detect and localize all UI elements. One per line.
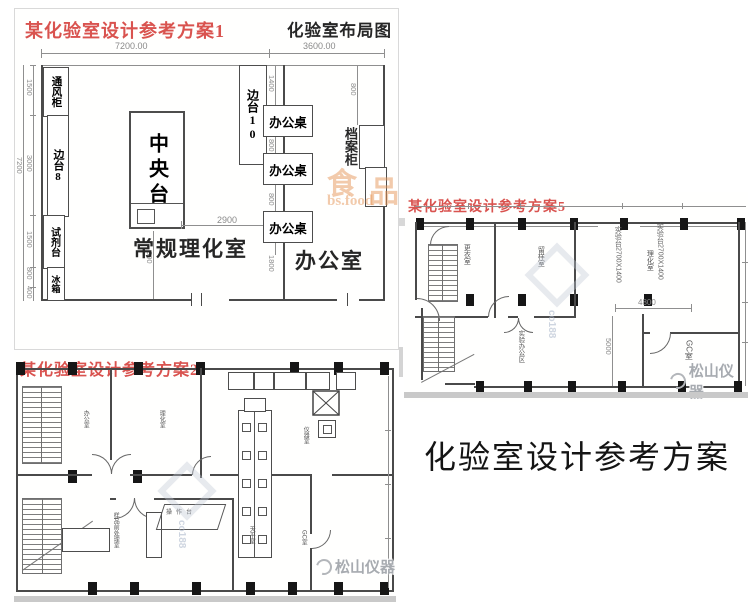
wall-bench bbox=[336, 372, 356, 390]
co188-watermark-text: co188 bbox=[176, 520, 187, 548]
bench-annotation: 实验台2700X1400 bbox=[614, 226, 621, 283]
image-shadow bbox=[14, 596, 396, 602]
bench-seat bbox=[258, 479, 267, 488]
image-remnant bbox=[398, 218, 405, 226]
stairs-rail bbox=[41, 387, 42, 463]
door-tick bbox=[191, 293, 192, 306]
column bbox=[134, 362, 143, 375]
dim-tick bbox=[385, 430, 391, 431]
dim-tick bbox=[385, 538, 391, 539]
dim-tick bbox=[181, 221, 182, 229]
dim-tick bbox=[269, 49, 270, 58]
room-label: GC室 bbox=[300, 530, 306, 545]
wall-line bbox=[642, 332, 650, 334]
dim-tick bbox=[742, 262, 748, 263]
wall-line bbox=[332, 474, 392, 476]
songshan-logo-icon bbox=[313, 556, 335, 578]
room-label-gc: GC室 bbox=[684, 340, 692, 360]
bench-seat bbox=[242, 423, 251, 432]
stairs bbox=[423, 316, 455, 372]
dim-label: 1800 bbox=[267, 255, 276, 272]
wall-line bbox=[310, 474, 312, 534]
small-fixture bbox=[318, 420, 336, 438]
bench-cap bbox=[244, 398, 266, 412]
column bbox=[130, 582, 139, 595]
wall-line bbox=[16, 474, 92, 476]
wall-bench bbox=[306, 372, 330, 390]
room-label: 更衣室 bbox=[463, 244, 470, 265]
dim-label: 800 bbox=[267, 193, 276, 206]
room-label: 办公室 bbox=[82, 410, 88, 428]
bench-divider bbox=[131, 203, 183, 204]
office-desk-label: 办公桌 bbox=[269, 112, 307, 131]
door-arc bbox=[430, 226, 449, 245]
plan5-figure: 某化验室设计参考方案5 bbox=[404, 192, 748, 402]
dim-tick bbox=[468, 203, 469, 209]
bench-annotation: 实验台2700X1400 bbox=[656, 223, 663, 280]
column bbox=[416, 218, 424, 230]
room-label: 天平室 bbox=[248, 526, 254, 544]
bench-seat bbox=[242, 507, 251, 516]
dim-tick bbox=[520, 203, 521, 209]
co188-watermark-text: co188 bbox=[546, 310, 557, 338]
door-tick bbox=[347, 293, 348, 306]
door-arc bbox=[312, 530, 331, 549]
wall-line bbox=[229, 299, 337, 301]
door-tick bbox=[201, 293, 202, 306]
image-remnant bbox=[399, 347, 403, 377]
column bbox=[680, 218, 688, 230]
dim-label: 1500 bbox=[25, 231, 34, 248]
room-label: 理化室 bbox=[646, 250, 653, 271]
co188-diamond-watermark bbox=[524, 242, 589, 307]
dim-tick bbox=[682, 203, 683, 209]
door-arc bbox=[650, 333, 671, 354]
office-desk-label: 办公桌 bbox=[269, 160, 307, 179]
office-desk: 办公桌 bbox=[263, 211, 313, 243]
image-shadow bbox=[404, 392, 748, 398]
dim-label-height: 5000 bbox=[604, 338, 613, 355]
bench-seat bbox=[242, 451, 251, 460]
column bbox=[192, 582, 201, 595]
office-desk: 办公桌 bbox=[263, 153, 313, 185]
column bbox=[518, 218, 526, 230]
column bbox=[68, 362, 77, 375]
dim-tick bbox=[742, 342, 748, 343]
bench-seat bbox=[242, 479, 251, 488]
dim-line bbox=[415, 206, 746, 207]
office-desk-label: 办公桌 bbox=[269, 218, 307, 237]
side-bench-8: 边台8 bbox=[47, 115, 69, 217]
dim-label: 3000 bbox=[25, 155, 34, 172]
stairs bbox=[428, 244, 458, 302]
page-title: 化验室设计参考方案 bbox=[424, 432, 730, 478]
column bbox=[334, 582, 343, 595]
reagent-bench-label: 试剂台 bbox=[47, 227, 62, 257]
elevator-shaft-symbol bbox=[312, 390, 340, 416]
dim-label-cabinet: 800 bbox=[349, 83, 358, 96]
wall-line bbox=[415, 222, 746, 224]
fridge: 冰箱 bbox=[47, 267, 65, 301]
dim-tick bbox=[615, 304, 616, 312]
dim-tick bbox=[30, 115, 36, 116]
bench-seat bbox=[258, 507, 267, 516]
dim-line bbox=[615, 308, 692, 309]
dim-tick bbox=[691, 304, 692, 312]
bench bbox=[62, 528, 110, 552]
stairs-rail bbox=[438, 317, 439, 371]
column bbox=[133, 470, 142, 483]
watermark-food-url: bs.food bbox=[327, 193, 373, 210]
wall-line bbox=[110, 368, 112, 460]
plan1-subtitle: 化验室布局图 bbox=[287, 17, 392, 41]
wall-bench bbox=[274, 372, 306, 390]
stairs-rail bbox=[442, 245, 443, 301]
songshan-watermark: 松山仪器 bbox=[316, 556, 395, 577]
reagent-bench: 试剂台 bbox=[43, 215, 65, 269]
side-bench-10-label: 边台10 bbox=[245, 89, 262, 141]
room-label: 仪器室 bbox=[302, 426, 308, 444]
wall-line bbox=[445, 383, 475, 385]
wall-line bbox=[670, 332, 740, 334]
door-arc bbox=[92, 454, 112, 474]
sink-symbol bbox=[137, 209, 155, 224]
dim-line bbox=[41, 53, 385, 54]
dim-tick bbox=[742, 302, 748, 303]
wall-line bbox=[359, 299, 385, 301]
column bbox=[466, 218, 474, 230]
bench-seat bbox=[258, 451, 267, 460]
side-bench-8-label: 边台8 bbox=[50, 149, 66, 183]
dim-tick bbox=[622, 203, 623, 209]
dim-tick bbox=[385, 484, 391, 485]
wall-bench bbox=[228, 372, 254, 390]
room-label: 样品前处理室 bbox=[112, 512, 118, 548]
column bbox=[380, 362, 389, 375]
instrument-bench bbox=[238, 410, 272, 558]
room-label-lab: 常规理化室 bbox=[133, 233, 248, 263]
collage-canvas: 某化验室设计参考方案1 化验室布局图 7200.00 3600.00 7200 … bbox=[0, 0, 750, 616]
stairs-rail bbox=[42, 499, 43, 573]
stairs bbox=[22, 386, 62, 464]
room-label: 实验办公区 bbox=[516, 330, 523, 363]
dim-label-overall: 7200 bbox=[15, 157, 24, 174]
songshan-watermark-text: 松山仪器 bbox=[335, 556, 395, 577]
door-arc bbox=[111, 454, 131, 474]
dim-label: 800 bbox=[25, 267, 34, 280]
dim-label: 400 bbox=[25, 286, 34, 299]
door-arc bbox=[488, 296, 509, 317]
column bbox=[88, 582, 97, 595]
dim-label: 1400 bbox=[267, 75, 276, 92]
bench-seat bbox=[258, 423, 267, 432]
bench-seat bbox=[258, 535, 267, 544]
wall-bench bbox=[254, 372, 274, 390]
dim-label-central-width: 2900 bbox=[217, 215, 237, 225]
fixture-dot bbox=[323, 425, 332, 434]
office-desk: 办公桌 bbox=[263, 105, 313, 137]
column bbox=[518, 294, 526, 306]
dim-line bbox=[33, 65, 34, 301]
dim-tick bbox=[30, 215, 36, 216]
wall-line bbox=[415, 222, 417, 300]
watermark-food-char: 品 bbox=[369, 167, 399, 211]
wall-line bbox=[232, 498, 234, 590]
room-label: 理化室 bbox=[158, 410, 164, 428]
dim-tick bbox=[384, 49, 385, 58]
plan1-figure: 某化验室设计参考方案1 化验室布局图 7200.00 3600.00 7200 … bbox=[14, 8, 399, 350]
dim-label: 1500 bbox=[25, 79, 34, 96]
file-cabinet bbox=[359, 125, 385, 169]
column bbox=[288, 582, 297, 595]
column bbox=[246, 582, 255, 595]
central-bench-label: 中央台 bbox=[143, 133, 172, 208]
fume-hood: 通风柜 bbox=[43, 67, 69, 117]
dim-line bbox=[23, 65, 24, 301]
wall-line bbox=[16, 368, 18, 592]
wall-line bbox=[310, 548, 312, 592]
songshan-logo-icon bbox=[667, 370, 689, 392]
stairs bbox=[22, 498, 62, 574]
fume-hood-label: 通风柜 bbox=[49, 76, 64, 108]
column bbox=[68, 470, 77, 483]
column bbox=[466, 294, 474, 306]
room-label-office: 办公室 bbox=[295, 245, 364, 275]
column bbox=[16, 362, 25, 375]
fridge-label: 冰箱 bbox=[50, 275, 63, 293]
plan2-figure: 某化验室设计参考方案2 bbox=[14, 352, 396, 604]
dim-tick bbox=[30, 65, 36, 66]
plan1-title: 某化验室设计参考方案1 bbox=[25, 17, 225, 43]
dim-label-top-left: 7200.00 bbox=[115, 41, 148, 51]
wall-line bbox=[41, 65, 385, 66]
wall-line bbox=[642, 314, 644, 388]
dim-tick bbox=[41, 49, 42, 58]
dim-label-top-right: 3600.00 bbox=[303, 41, 336, 51]
dim-label-width: 4800 bbox=[638, 298, 656, 307]
dim-label: 800 bbox=[267, 139, 276, 152]
central-bench: 中央台 bbox=[129, 111, 185, 229]
